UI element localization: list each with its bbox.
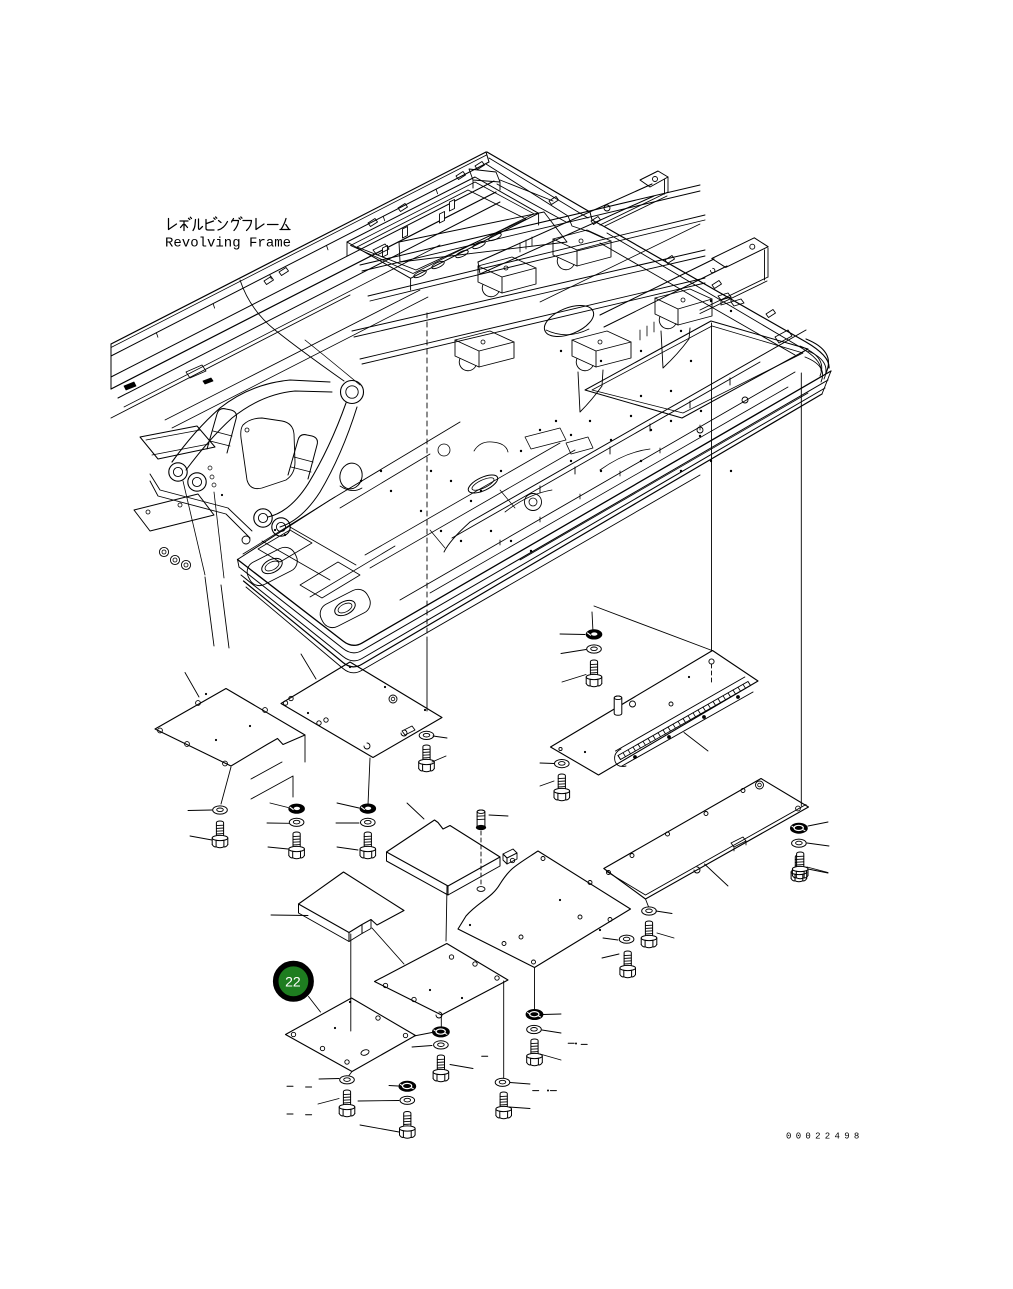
svg-text:Revolving Frame: Revolving Frame: [165, 236, 291, 252]
svg-text:22: 22: [285, 973, 301, 989]
svg-text:00022498: 00022498: [786, 1132, 864, 1142]
